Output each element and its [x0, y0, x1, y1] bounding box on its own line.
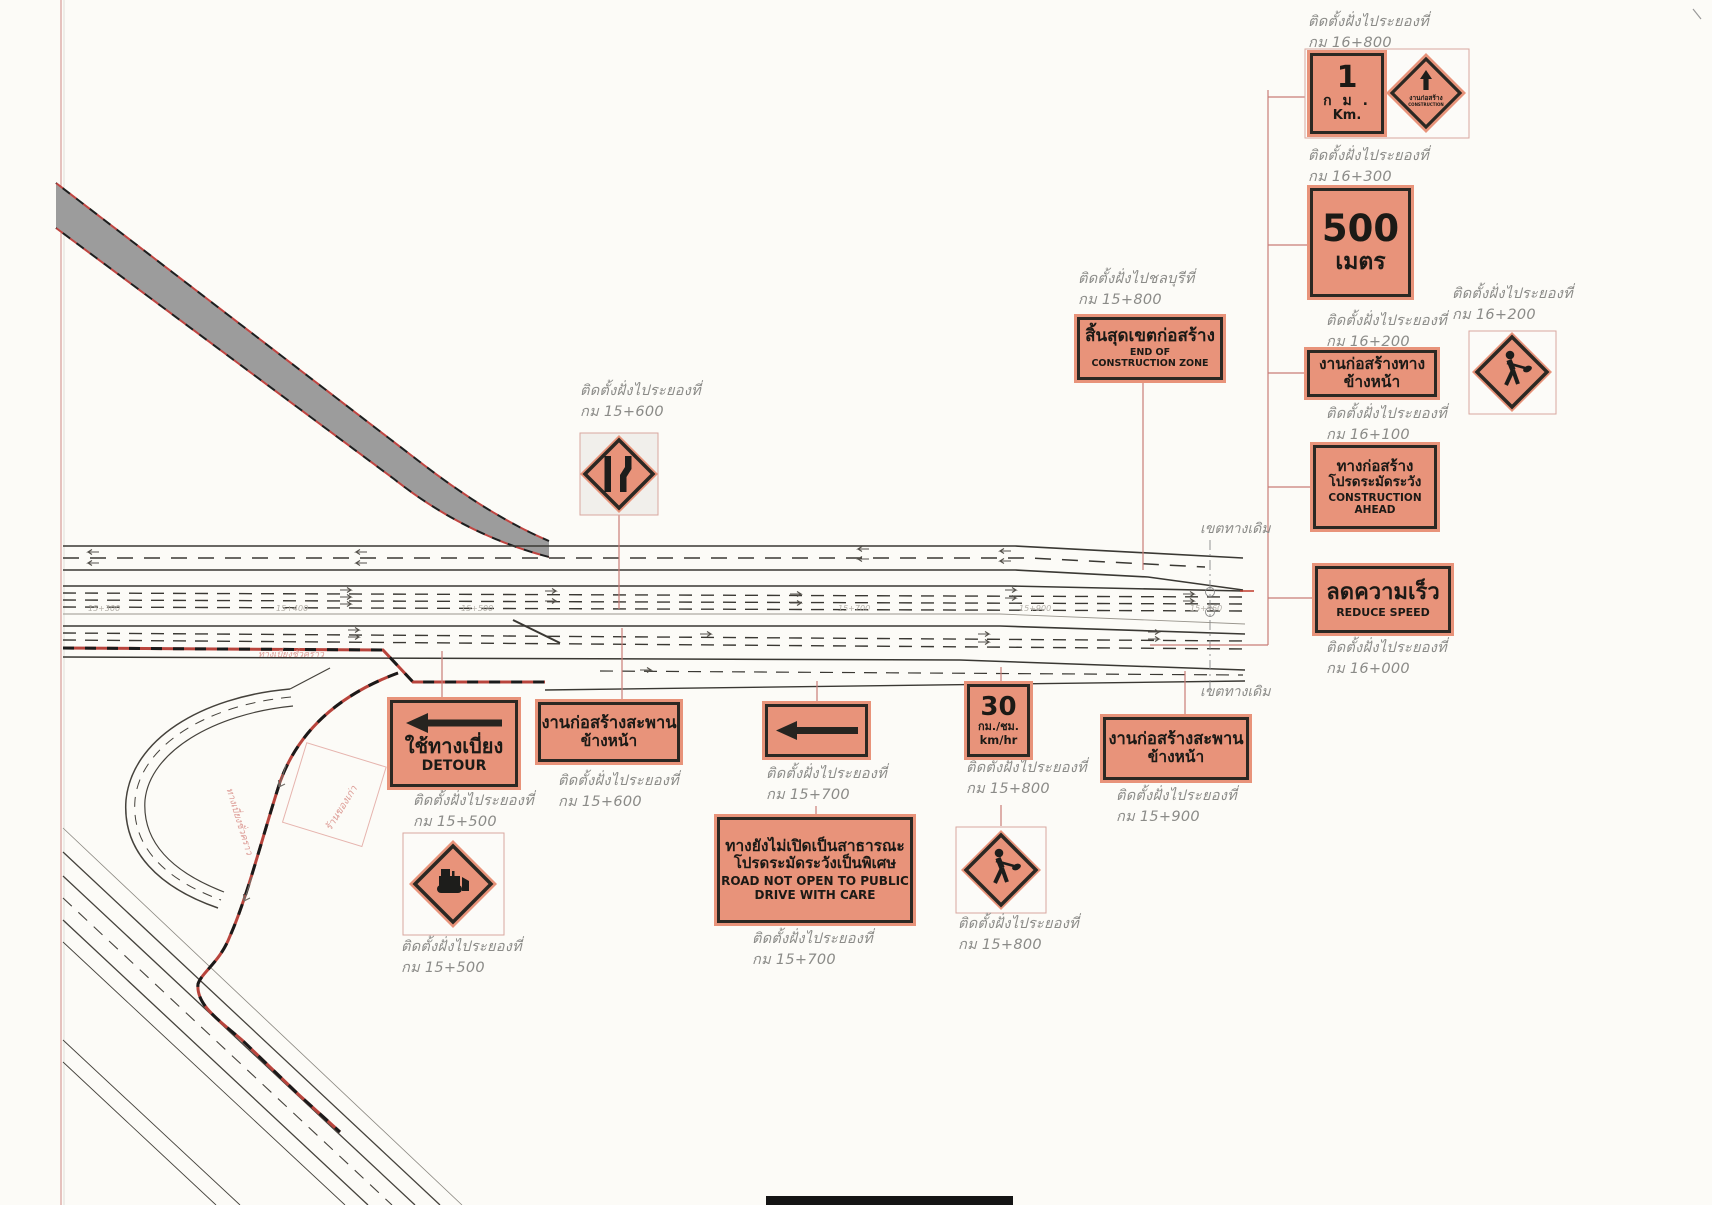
sign-speed-30: 30 กม./ชม. km/hr	[967, 684, 1030, 757]
station-marker: 15+900	[1019, 604, 1051, 613]
boundary-markers	[1206, 540, 1255, 700]
plan-linework	[0, 0, 1712, 1205]
right-of-way-label-bottom: เขตทางเดิม	[1200, 681, 1270, 703]
sign-500m: 500 เมตร	[1310, 188, 1411, 297]
sign-roadwork-ahead: งานก่อสร้างทาง ข้างหน้า	[1307, 350, 1437, 397]
placement-label: ติดตั้งฝั่งไประยองที่กม 15+800	[958, 914, 1079, 955]
placement-label: ติดตั้งฝั่งไประยองที่กม 16+200	[1326, 311, 1447, 352]
placement-label: ติดตั้งฝั่งไประยองที่กม 16+800	[1308, 12, 1429, 53]
closed-ramp	[56, 183, 549, 557]
station-marker: 15+500	[461, 604, 493, 613]
placement-label: ติดตั้งฝั่งไประยองที่กม 15+500	[401, 937, 522, 978]
left-arrow-icon	[776, 721, 858, 740]
sign-1km: 1 ก ม . Km.	[1310, 53, 1384, 134]
placement-label: ติดตั้งฝั่งไประยองที่กม 15+500	[413, 791, 534, 832]
sign-construction-ahead: ทางก่อสร้าง โปรดระมัดระวัง CONSTRUCTION …	[1313, 445, 1437, 529]
placement-label: ติดตั้งฝั่งไประยองที่กม 16+100	[1326, 404, 1447, 445]
sign-direction-arrow	[765, 704, 868, 757]
placement-label: ติดตั้งฝั่งไปชลบุรีที่กม 15+800	[1078, 269, 1195, 310]
sign-end-of-zone: สิ้นสุดเขตก่อสร้าง END OF CONSTRUCTION Z…	[1077, 317, 1223, 380]
highway	[63, 546, 1245, 690]
station-marker: 15+400	[276, 604, 308, 613]
placement-label: ติดตั้งฝั่งไประยองที่กม 15+600	[580, 381, 701, 422]
sign-detour: ใช้ทางเบี่ยง DETOUR	[390, 700, 518, 787]
scan-bar	[766, 1196, 1013, 1205]
station-marker: 15+300	[88, 604, 120, 613]
right-of-way-label-top: เขตทางเดิม	[1200, 518, 1270, 540]
detour-route-label: ทางเบี่ยงชั่วคราว	[258, 647, 324, 661]
detour-route	[198, 673, 398, 1132]
station-marker: 15+960	[1190, 604, 1222, 613]
placement-label: ติดตั้งฝั่งไประยองที่กม 16+200	[1452, 284, 1573, 325]
sign-bridge-ahead-2: งานก่อสร้างสะพาน ข้างหน้า	[1103, 717, 1249, 780]
construction-diamond-sublabel: CONSTRUCTION	[1391, 102, 1461, 107]
sign-bridge-ahead-1: งานก่อสร้างสะพาน ข้างหน้า	[538, 702, 680, 762]
placement-label: ติดตั้งฝั่งไประยองที่กม 16+300	[1308, 146, 1429, 187]
placement-label: ติดตั้งฝั่งไประยองที่กม 15+700	[766, 764, 887, 805]
placement-label: ติดตั้งฝั่งไประยองที่กม 15+600	[558, 771, 679, 812]
construction-traffic-plan: ติดตั้งฝั่งไประยองที่กม 16+800 ติดตั้งฝั…	[0, 0, 1712, 1205]
sign-reduce-speed: ลดความเร็ว REDUCE SPEED	[1315, 566, 1451, 633]
placement-label: ติดตั้งฝั่งไประยองที่กม 15+800	[966, 758, 1087, 799]
station-marker: 15+700	[838, 604, 870, 613]
placement-label: ติดตั้งฝั่งไประยองที่กม 15+700	[752, 929, 873, 970]
left-arrow-icon	[406, 713, 502, 733]
sign-road-not-open: ทางยังไม่เปิดเป็นสาธารณะ โปรดระมัดระวังเ…	[717, 817, 913, 923]
placement-label: ติดตั้งฝั่งไประยองที่กม 15+900	[1116, 786, 1237, 827]
placement-label: ติดตั้งฝั่งไประยองที่กม 16+000	[1326, 638, 1447, 679]
